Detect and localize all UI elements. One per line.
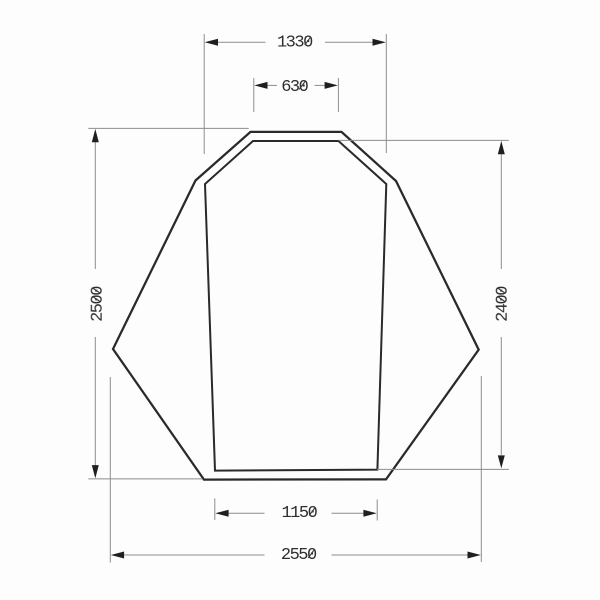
svg-text:1150: 1150 xyxy=(281,504,317,523)
svg-text:630: 630 xyxy=(281,78,308,97)
svg-text:1330: 1330 xyxy=(277,34,313,53)
svg-text:2550: 2550 xyxy=(281,546,317,565)
